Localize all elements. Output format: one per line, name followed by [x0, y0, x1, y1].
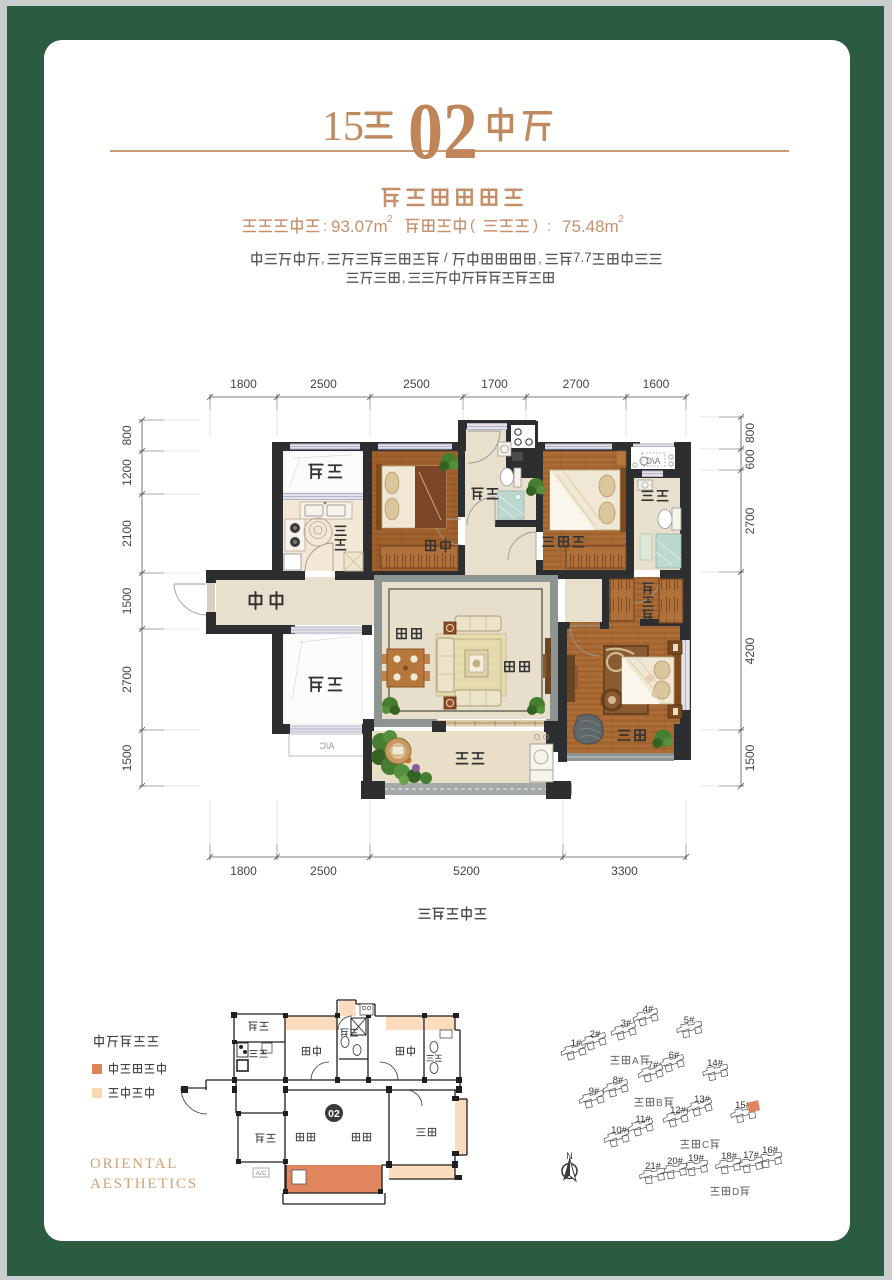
svg-text:17#: 17#: [743, 1150, 760, 1161]
svg-text:2700: 2700: [563, 377, 590, 391]
svg-text:A/C: A/C: [645, 456, 661, 466]
svg-text:(: (: [470, 217, 475, 234]
svg-text:93.07m: 93.07m: [331, 217, 388, 236]
svg-text:1#: 1#: [571, 1038, 582, 1049]
svg-text:): ): [533, 217, 538, 234]
svg-text:,: ,: [402, 270, 406, 285]
svg-text:12#: 12#: [670, 1105, 687, 1116]
svg-text:13#: 13#: [694, 1094, 711, 1105]
svg-text:9#: 9#: [589, 1086, 600, 1097]
svg-text:AESTHETICS: AESTHETICS: [90, 1176, 198, 1192]
svg-text:D: D: [732, 1187, 739, 1198]
svg-text:6#: 6#: [669, 1050, 680, 1061]
svg-text::: :: [547, 218, 551, 235]
svg-text:1700: 1700: [481, 377, 508, 391]
svg-text:2100: 2100: [120, 520, 134, 547]
svg-text:2700: 2700: [743, 507, 757, 534]
svg-text:20#: 20#: [667, 1156, 684, 1167]
svg-text:,: ,: [321, 251, 325, 266]
svg-text:600: 600: [743, 449, 757, 469]
svg-text:2700: 2700: [120, 666, 134, 693]
svg-text:10#: 10#: [611, 1125, 628, 1136]
svg-text:1500: 1500: [120, 587, 134, 614]
svg-text:2500: 2500: [310, 377, 337, 391]
svg-text:1500: 1500: [120, 744, 134, 771]
svg-text:2: 2: [618, 214, 624, 225]
svg-text:2#: 2#: [590, 1029, 601, 1040]
svg-text:800: 800: [120, 425, 134, 445]
svg-text:1500: 1500: [743, 744, 757, 771]
svg-text:16#: 16#: [762, 1145, 779, 1156]
svg-text:3#: 3#: [621, 1018, 632, 1029]
svg-text:15: 15: [322, 104, 364, 150]
svg-text:75.48m: 75.48m: [562, 217, 619, 236]
svg-text:A/C: A/C: [256, 1170, 267, 1177]
svg-text:18#: 18#: [721, 1151, 738, 1162]
svg-text:5#: 5#: [684, 1015, 695, 1026]
svg-text:19#: 19#: [688, 1153, 705, 1164]
svg-text:ORIENTAL: ORIENTAL: [90, 1156, 178, 1172]
svg-text:2500: 2500: [403, 377, 430, 391]
svg-text:02: 02: [408, 87, 478, 176]
svg-text:B: B: [656, 1098, 663, 1109]
svg-text:7#: 7#: [648, 1060, 659, 1071]
svg-text:3300: 3300: [611, 864, 638, 878]
svg-text:1800: 1800: [230, 377, 257, 391]
svg-text:4200: 4200: [743, 637, 757, 664]
svg-text:8#: 8#: [613, 1075, 624, 1086]
svg-text:C: C: [702, 1140, 709, 1151]
svg-text:1800: 1800: [230, 864, 257, 878]
svg-text:,: ,: [538, 251, 542, 266]
svg-text:1600: 1600: [643, 377, 670, 391]
svg-text:5200: 5200: [453, 864, 480, 878]
svg-text:14#: 14#: [707, 1058, 724, 1069]
svg-text:4#: 4#: [643, 1004, 654, 1015]
svg-text:1200: 1200: [120, 459, 134, 486]
svg-text:2: 2: [387, 214, 393, 225]
svg-text:A/C: A/C: [319, 741, 335, 751]
svg-text:11#: 11#: [635, 1114, 651, 1125]
svg-text:A: A: [632, 1056, 639, 1067]
svg-text:800: 800: [743, 423, 757, 443]
svg-text:02: 02: [328, 1108, 340, 1120]
svg-text:21#: 21#: [645, 1161, 662, 1172]
svg-text:7.7: 7.7: [573, 250, 592, 265]
svg-text::: :: [323, 218, 327, 235]
svg-text:2500: 2500: [310, 864, 337, 878]
svg-text:/: /: [444, 250, 448, 265]
